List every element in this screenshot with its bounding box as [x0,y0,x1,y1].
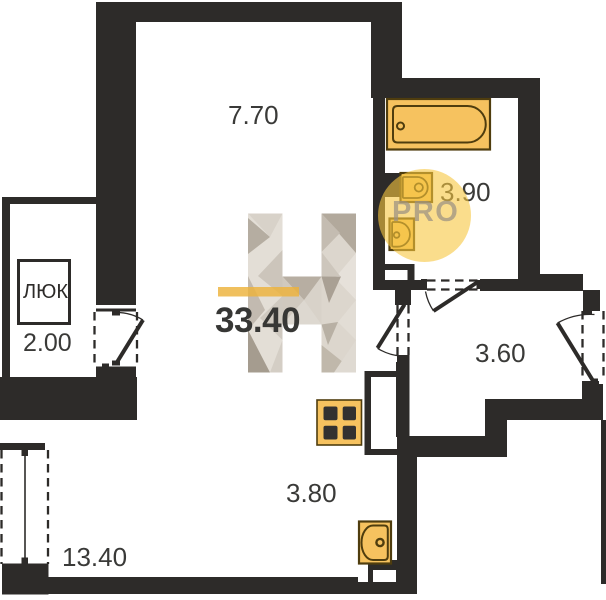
svg-text:13.40: 13.40 [62,542,127,572]
svg-text:PRO: PRO [392,196,459,228]
svg-text:2.00: 2.00 [23,329,72,357]
svg-text:3.60: 3.60 [475,338,526,368]
svg-text:33.40: 33.40 [215,301,300,340]
svg-text:ЛЮК: ЛЮК [23,281,68,303]
svg-text:3.80: 3.80 [286,478,337,508]
svg-text:7.70: 7.70 [228,100,279,130]
